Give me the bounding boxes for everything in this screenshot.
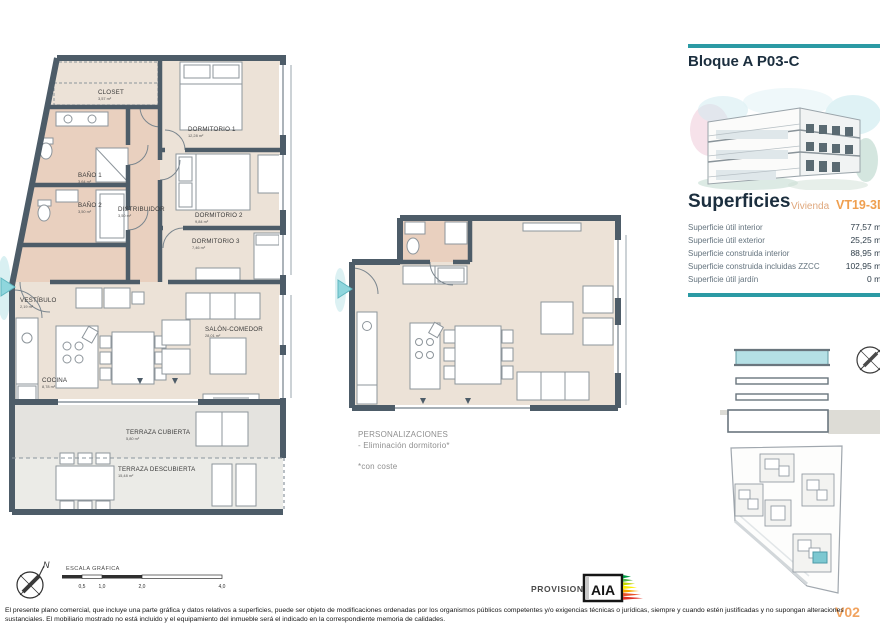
area-bano1: 3,64 m² [78,179,92,184]
row-value: 25,25 m² [850,235,880,245]
label-dormitorio2: DORMITORIO 2 [195,212,243,219]
row-label: Superficie útil exterior [688,236,765,245]
terrace-bench [196,412,248,446]
dining-table [100,332,166,384]
area-dormitorio1: 12,28 m² [188,133,204,138]
legal-disclaimer: El presente plano comercial, que incluye… [5,606,873,625]
floor-slab [736,394,828,400]
area-vestibulo: 2,19 m² [20,304,34,309]
building-sketch [688,80,880,190]
row-value: 102,95 m² [846,261,880,271]
label-salon: SALÓN-COMEDOR [205,326,263,333]
label-bano1: BAÑO 1 [78,172,102,179]
superficies-title: Superficies [688,191,790,213]
top-rule [688,44,880,48]
scale-tick: 0,5 [79,584,86,590]
area-dormitorio3: 7,46 m² [192,245,206,250]
row-value: 77,57 m² [850,222,880,232]
label-cocina: COCINA [42,377,68,384]
sofa [517,372,589,400]
sofa [186,293,260,319]
unit-code: VT19-3D [836,198,880,212]
building-section-diagram [718,336,880,444]
floor-plan-main: CLOSET 3,57 m² DORMITORIO 1 12,28 m² BAÑ… [0,50,300,520]
kitchen-counter [357,312,377,404]
row-label: Superficie construida interior [688,249,789,258]
row-label: Superficie construida incluidas ZZCC [688,262,820,271]
scale-bar: ESCALA GRÁFICA 0,5 1,0 2,0 4,0 [52,560,262,594]
base-floor [728,410,828,432]
area-terraza-descubierta: 15,48 m² [118,473,134,478]
coffee-table [210,338,246,374]
scale-tick: 1,0 [99,584,106,590]
label-terraza-descubierta: TERRAZA DESCUBIERTA [118,466,196,473]
label-vestibulo: VESTÍBULO [20,297,57,304]
scale-tick: 4,0 [219,584,226,590]
area-bano2: 3,50 m² [78,209,92,214]
area-dormitorio2: 9,84 m² [195,219,209,224]
label-bano2: BAÑO 2 [78,202,102,209]
row-value: 0 m² [867,274,880,284]
scale-bar-label: ESCALA GRÁFICA [66,565,120,572]
personalizaciones-note: *con coste [358,462,397,471]
kitchen-counter [16,318,38,402]
row-value: 88,95 m² [850,248,880,258]
coffee-table [541,302,573,334]
area-terraza-cubierta: 5,80 m² [126,436,140,441]
ground [828,410,880,434]
bath-zone-floor [13,107,160,282]
label-distribuidor: DISTRIBUIDOR [118,206,165,213]
bottom-rule [688,293,880,297]
dining-table [444,326,513,384]
logo-text: AIA [591,582,615,598]
vivienda-label: Vivienda [791,201,829,212]
area-closet: 3,57 m² [98,96,112,101]
table-row: Superficie construida incluidas ZZCC 102… [688,261,880,274]
compass-icon [857,347,880,373]
bed-dormitorio1 [180,62,242,130]
area-distribuidor: 3,50 m² [118,213,132,218]
personalizaciones-title: PERSONALIZACIONES [358,430,448,439]
personalizaciones-item: - Eliminación dormitorio* [358,441,450,450]
block-title: Bloque A P03-C [688,53,799,70]
label-dormitorio1: DORMITORIO 1 [188,126,236,133]
scale-tick: 2,0 [139,584,146,590]
row-label: Superficie útil interior [688,223,763,232]
hall-cabinets [403,266,467,284]
table-row: Superficie útil jardín 0 m² [688,274,880,287]
energy-arrows-icon [623,575,643,600]
table-row: Superficie útil exterior 25,25 m² [688,235,880,248]
tv-sideboard [523,223,581,231]
row-label: Superficie útil jardín [688,275,758,284]
superficies-table: Superficie útil interior 77,57 m² Superf… [688,222,880,287]
kitchen-island [410,322,443,389]
label-terraza-cubierta: TERRAZA CUBIERTA [126,429,191,436]
label-closet: CLOSET [98,89,124,96]
table-row: Superficie construida interior 88,95 m² [688,248,880,261]
table-row: Superficie útil interior 77,57 m² [688,222,880,235]
north-label: N [43,560,50,570]
floor-slab [736,378,828,384]
highlighted-floor [736,350,828,365]
area-salon: 28,01 m² [205,333,221,338]
site-plan [705,436,880,606]
area-cocina: 8,78 m² [42,384,56,389]
aia-energy-logo-icon: AIA [580,572,650,606]
highlighted-unit [813,552,827,563]
outdoor-dining-set [56,453,114,511]
floor-plan-variant [335,210,630,415]
label-dormitorio3: DORMITORIO 3 [192,238,240,245]
